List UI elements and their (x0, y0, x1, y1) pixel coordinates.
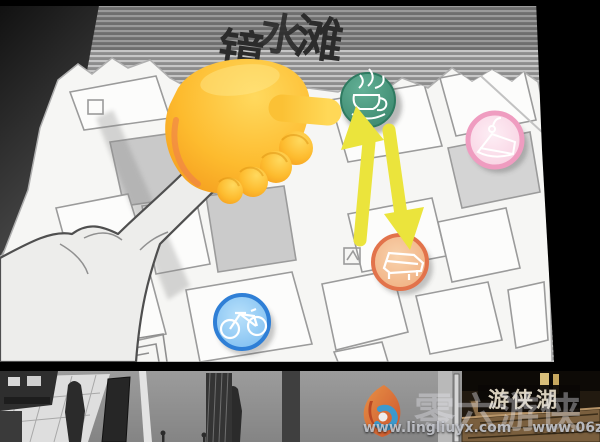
map-scene: 镜 水 滩 (0, 0, 600, 362)
top-black-bar (0, 0, 600, 6)
watermark-url-left: www.lingliuyx.com (363, 420, 511, 436)
watermark-urls: www.lingliuyx.com www.06zyx.com (363, 420, 600, 436)
game-scene: 镜 水 滩 (0, 0, 600, 442)
watermark-url-right: www.06zyx.com (532, 420, 600, 436)
location-title-char-3: 滩 (292, 9, 347, 71)
